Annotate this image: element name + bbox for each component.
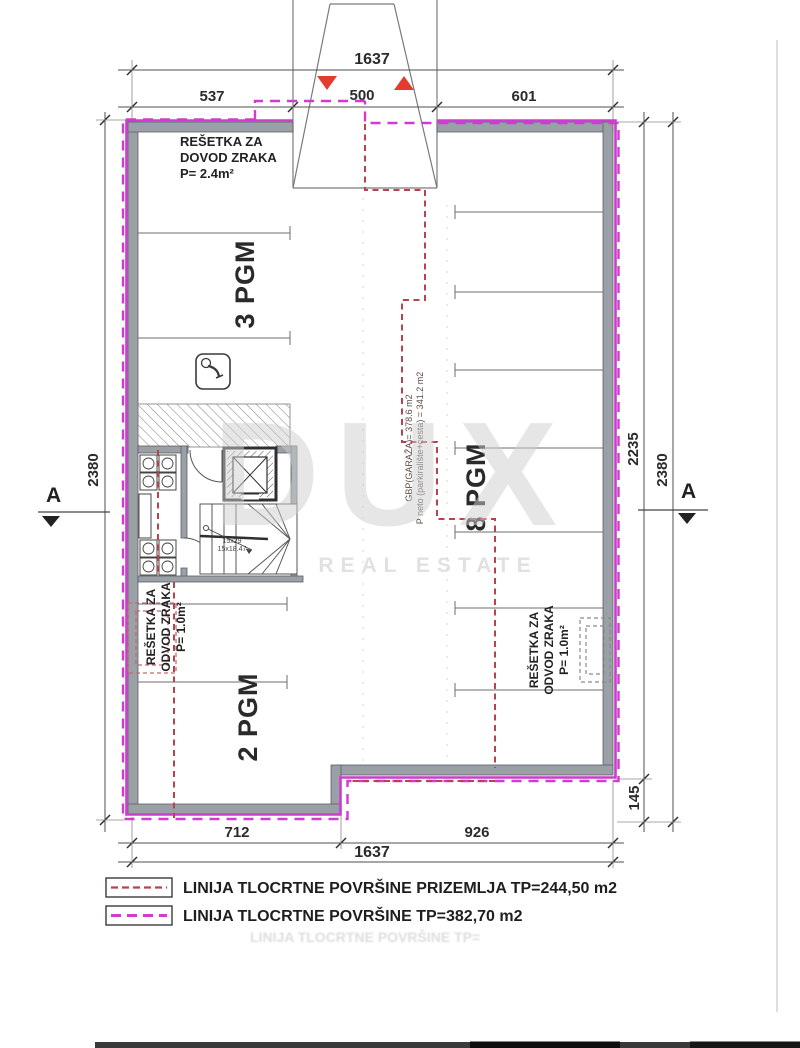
note-odvod-left-1: REŠETKA ZA	[143, 589, 158, 666]
dim-bottom-total: 1637	[354, 844, 390, 861]
wall-bottom-left	[128, 804, 341, 814]
legend-row1-label: LINIJA TLOCRTNE POVRŠINE PRIZEMLJA TP=24…	[183, 878, 617, 897]
note-dovod-3: P= 2.4m²	[180, 166, 235, 181]
parking-left-3pgm: 3 PGM	[138, 226, 290, 345]
legend: LINIJA TLOCRTNE POVRŠINE PRIZEMLJA TP=24…	[106, 878, 617, 945]
label-3pgm: 3 PGM	[230, 239, 260, 328]
dim-right-outer: 2380	[654, 453, 671, 486]
dim-top-right: 601	[511, 88, 536, 105]
section-arrow-right-icon	[678, 513, 696, 524]
dim-top-total: 1637	[354, 51, 390, 68]
faucet-icon	[196, 354, 230, 389]
legend-ghost-text: LINIJA TLOCRTNE POVRŠINE TP=	[250, 928, 480, 945]
label-2pgm: 2 PGM	[233, 672, 263, 761]
section-letter-left: A	[46, 484, 61, 507]
note-dovod-1: REŠETKA ZA	[180, 134, 263, 149]
section-marker-left: A	[38, 484, 110, 527]
note-odvod-right-1: REŠETKA ZA	[526, 612, 541, 689]
legend-row2-label: LINIJA TLOCRTNE POVRŠINE TP=382,70 m2	[183, 906, 523, 925]
section-arrow-left-icon	[42, 516, 60, 527]
dim-bottom-left: 712	[224, 824, 249, 841]
wall-top-left	[128, 122, 293, 132]
note-odvod-left-2: ODVOD ZRAKA	[159, 582, 173, 672]
wall-left	[128, 122, 138, 814]
watermark-tagline: REAL ESTATE	[318, 554, 537, 577]
dim-bottom-right: 926	[464, 824, 489, 841]
dim-left-height: 2380	[85, 453, 102, 486]
wall-bottom-right	[337, 765, 613, 775]
dim-right-step: 145	[626, 785, 643, 810]
note-odvod-left-3: P= 1.0m²	[174, 602, 188, 652]
floor-plan-page: 1637 537 500 601 2380 2235 2380 145	[0, 0, 800, 1048]
note-odvod-right-2: ODVOD ZRAKA	[542, 605, 556, 695]
dim-right-inner: 2235	[625, 432, 642, 465]
section-letter-right: A	[681, 480, 696, 503]
note-odvod-right-3: P= 1.0m²	[557, 625, 571, 675]
ramp-down-arrow-icon	[317, 76, 337, 90]
watermark: DUX REAL ESTATE	[213, 392, 573, 577]
dim-top-left: 537	[199, 88, 224, 105]
floor-plan-drawing: 1637 537 500 601 2380 2235 2380 145	[0, 0, 800, 1048]
note-dovod-2: DOVOD ZRAKA	[180, 150, 277, 165]
watermark-brand: DUX	[213, 392, 573, 557]
